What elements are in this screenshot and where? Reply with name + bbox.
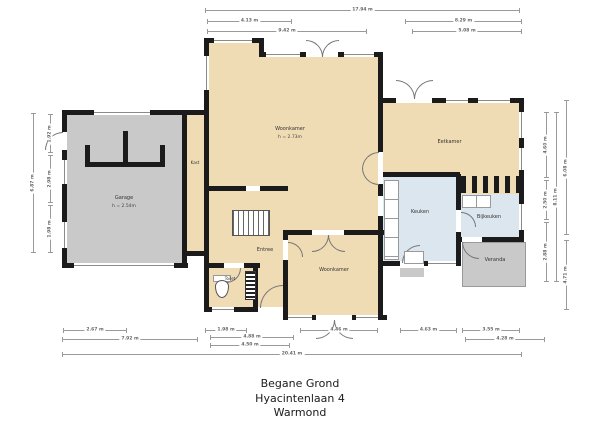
kitchen-cabinets — [461, 176, 519, 193]
room-height-note: h = 2.73m — [232, 134, 348, 142]
window — [356, 315, 378, 320]
dimension-line: 4.28 m — [465, 339, 545, 340]
dimension-label: 5.08 m — [456, 29, 477, 34]
room-label-woonkamer: Woonkamer h = 2.73m — [232, 125, 348, 141]
window — [519, 204, 524, 230]
dimension-line: 1.98 m — [205, 330, 247, 331]
room-name: Entree — [240, 246, 290, 255]
dimension-line: 4.13 m — [207, 21, 292, 22]
door-arc — [322, 40, 339, 57]
room-name: Eetkamer — [402, 138, 497, 147]
garage-marking — [85, 145, 90, 164]
dimension-label: 4.63 m — [418, 328, 439, 333]
window — [446, 98, 468, 103]
room-name: Kast — [184, 160, 206, 167]
wall — [378, 52, 383, 320]
dimension-label: 8.11 m — [554, 186, 559, 207]
kast-room — [186, 115, 204, 252]
window — [519, 148, 524, 170]
floorplan-page: Garage h = 2.54m Kast Woonkamer h = 2.73… — [0, 0, 600, 424]
dimension-label: 6.08 m — [564, 157, 569, 178]
dimension-line: 2.88 m — [546, 222, 547, 282]
appliance — [476, 195, 491, 208]
room-height-note: h = 2.54m — [64, 203, 184, 211]
garage-door — [74, 263, 174, 268]
window — [214, 38, 252, 43]
window — [204, 56, 209, 90]
garage-marking — [123, 131, 128, 164]
kitchen-counter — [384, 180, 399, 260]
room-label-kast: Kast — [184, 160, 206, 167]
window — [428, 261, 456, 266]
dimension-label: 3.55 m — [480, 328, 501, 333]
wall — [182, 110, 206, 115]
garage-marking — [160, 145, 165, 164]
room-label-bijkeuken: Bijkeuken — [461, 213, 517, 222]
staircase — [232, 210, 270, 236]
window — [94, 110, 150, 115]
dimension-label: 4.60 m — [544, 134, 549, 155]
room-label-woonkamer2: Woonkamer — [304, 266, 364, 275]
dimension-line: 7.92 m — [62, 339, 198, 340]
room-label-entree: Entree — [240, 246, 290, 255]
window — [212, 307, 234, 312]
dimension-line: 4.88 m — [210, 337, 294, 338]
dimension-line: 8.29 m — [405, 21, 522, 22]
room-name: Toilet — [208, 276, 252, 283]
room-label-veranda: Veranda — [468, 256, 522, 265]
dimension-label: 1.98 m — [48, 218, 53, 239]
room-label-keuken: Keuken — [396, 208, 444, 217]
room-name: Garage — [64, 194, 184, 203]
wall — [184, 251, 206, 256]
dimension-line: 6.08 m — [566, 100, 567, 235]
dimension-line: 6.87 m — [33, 113, 34, 253]
room-label-toilet: Toilet — [208, 276, 252, 283]
dimension-label: 6.87 m — [31, 172, 36, 193]
room-name: Woonkamer — [304, 266, 364, 275]
wall — [182, 110, 187, 268]
door-step — [400, 268, 424, 277]
dimension-label: 4.13 m — [239, 19, 260, 24]
title-block: Begane Grond Hyacintenlaan 4 Warmond — [0, 377, 600, 421]
dimension-label: 4.88 m — [241, 335, 262, 340]
dimension-line: 2.98 m — [50, 155, 51, 203]
door-arc — [396, 80, 415, 99]
dimension-label: 1.98 m — [215, 328, 236, 333]
dimension-label: 4.50 m — [239, 343, 260, 348]
window — [519, 112, 524, 138]
dimension-label: 17.94 m — [350, 8, 375, 13]
dimension-label: 7.92 m — [119, 337, 140, 342]
city-line: Warmond — [0, 406, 600, 421]
door-opening — [246, 186, 260, 191]
window — [266, 52, 300, 57]
dimension-label: 8.29 m — [453, 19, 474, 24]
dimension-label: 2.88 m — [544, 241, 549, 262]
dimension-label: 2.50 m — [544, 189, 549, 210]
window — [344, 52, 374, 57]
dimension-label: 2.67 m — [84, 328, 105, 333]
dimension-label: 4.28 m — [494, 337, 515, 342]
dimension-label: 4.46 m — [328, 328, 349, 333]
dimension-line: 5.08 m — [412, 31, 522, 32]
dimension-line: 9.42 m — [207, 31, 367, 32]
dimension-line: 2.67 m — [63, 330, 127, 331]
dimension-label: 1.92 m — [48, 123, 53, 144]
dimension-line: 3.55 m — [462, 330, 520, 331]
window — [62, 222, 67, 248]
window — [62, 160, 67, 184]
dimension-label: 4.71 m — [564, 264, 569, 285]
door-arc — [306, 40, 323, 57]
room-name: Woonkamer — [232, 125, 348, 134]
door-opening — [378, 196, 383, 216]
dimension-label: 2.98 m — [48, 168, 53, 189]
room-label-garage: Garage h = 2.54m — [64, 194, 184, 210]
door-arc — [414, 80, 433, 99]
dimension-line: 4.60 m — [546, 112, 547, 178]
dimension-line: 20.41 m — [62, 354, 522, 355]
address-line: Hyacintenlaan 4 — [0, 392, 600, 407]
dimension-line: 2.50 m — [546, 180, 547, 220]
floor-title: Begane Grond — [0, 377, 600, 392]
room-label-eetkamer: Eetkamer — [402, 138, 497, 147]
dimension-label: 9.42 m — [276, 29, 297, 34]
dimension-line: 1.92 m — [50, 114, 51, 153]
dimension-line: 1.98 m — [50, 205, 51, 253]
room-name: Veranda — [468, 256, 522, 265]
dimension-line: 8.11 m — [556, 112, 557, 282]
appliance — [462, 195, 477, 208]
dimension-line: 4.50 m — [210, 345, 290, 346]
dimension-line: 17.94 m — [205, 10, 520, 11]
kitchen-sink — [404, 251, 424, 264]
dimension-line: 4.46 m — [300, 330, 378, 331]
room-name: Bijkeuken — [461, 213, 517, 222]
wall — [382, 172, 460, 177]
dimension-line: 4.71 m — [566, 240, 567, 310]
dimension-label: 20.41 m — [280, 352, 305, 357]
room-name: Keuken — [396, 208, 444, 217]
dimension-line: 4.63 m — [400, 330, 457, 331]
window — [478, 98, 510, 103]
window — [288, 315, 312, 320]
woonkamer-room-center — [262, 56, 379, 232]
